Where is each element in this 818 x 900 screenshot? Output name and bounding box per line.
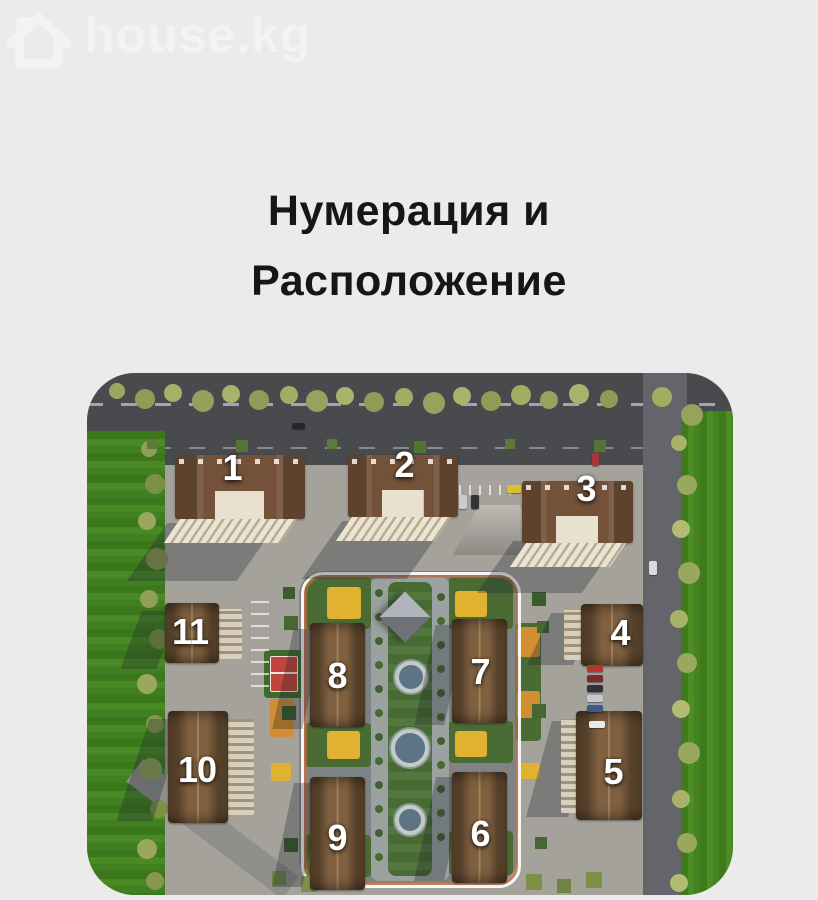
- car: [587, 695, 603, 702]
- car: [587, 665, 603, 672]
- road-lane-marking: [87, 447, 699, 449]
- building-number-marker: 10: [178, 752, 216, 788]
- building-number-marker: 11: [172, 614, 208, 650]
- car: [587, 705, 603, 712]
- building-number-marker: 7: [470, 654, 489, 690]
- car: [587, 685, 603, 692]
- building-number-marker: 1: [222, 450, 241, 486]
- bush-row: [147, 439, 157, 449]
- car: [592, 453, 599, 466]
- page: { "brand": { "name": "house.kg", "icon":…: [0, 0, 818, 900]
- building-number-marker: 5: [603, 754, 622, 790]
- car: [587, 675, 603, 682]
- car: [589, 721, 605, 728]
- car: [292, 423, 305, 429]
- building-10-terrace-wing: [226, 719, 254, 815]
- title-line-2: Расположение: [0, 246, 818, 316]
- building-number-marker: 2: [394, 447, 413, 483]
- building-number-marker: 8: [327, 658, 346, 694]
- building-number-marker: 9: [327, 820, 346, 856]
- page-title: Нумерация и Расположение: [0, 176, 818, 316]
- brand-name: house.kg: [84, 10, 311, 66]
- site-plan-image[interactable]: 1 2 3 4 5 6 7 8 9 10 11: [87, 373, 733, 895]
- building-11-terrace-wing: [217, 609, 242, 659]
- road-lane-marking: [87, 403, 733, 406]
- tree-row-top: [109, 383, 125, 399]
- house-logo-icon: [6, 6, 72, 70]
- building-4-terrace-wing: [564, 610, 582, 660]
- title-line-1: Нумерация и: [0, 176, 818, 246]
- car: [507, 485, 521, 493]
- tree-line-right: [671, 435, 687, 451]
- courtyard-trees: [283, 587, 295, 599]
- car: [471, 495, 479, 509]
- building-number-marker: 3: [576, 471, 595, 507]
- playground: [271, 763, 291, 781]
- brand-watermark: house.kg: [6, 6, 311, 70]
- car: [459, 495, 467, 509]
- green-field-right: [681, 411, 733, 895]
- building-number-marker: 6: [470, 816, 489, 852]
- building-number-marker: 4: [610, 615, 629, 651]
- parking-markings: [251, 601, 269, 689]
- car: [649, 561, 657, 575]
